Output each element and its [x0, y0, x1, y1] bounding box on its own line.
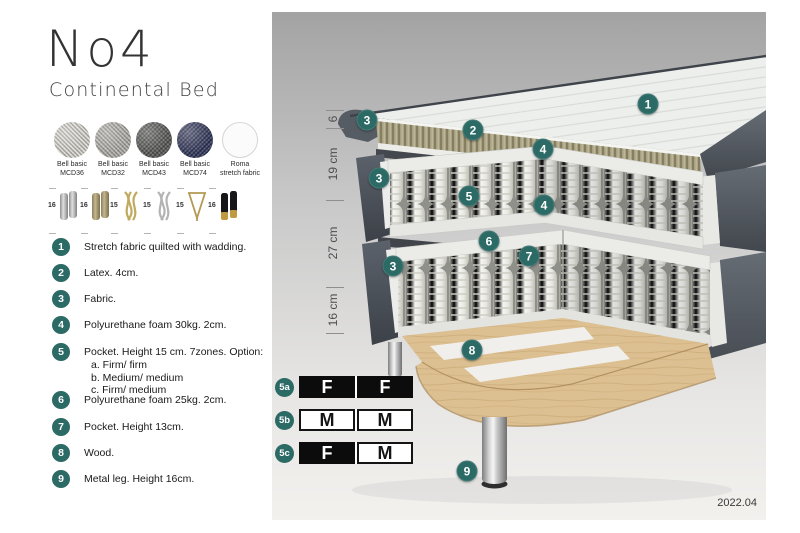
part-option-a: a. Firm/ firm: [84, 359, 263, 372]
part-description: Metal leg. Height 16cm.: [84, 470, 194, 488]
firmness-cell: F: [299, 376, 355, 398]
firmness-bar-5b: M M: [299, 409, 413, 431]
rear-leg: [388, 342, 402, 378]
leg-height-label: 15: [143, 202, 151, 209]
height-tick: [49, 233, 56, 234]
leg-height-label: 16: [48, 202, 56, 209]
firmness-cell: M: [299, 409, 355, 431]
part-number-badge: 2: [52, 264, 70, 282]
height-tick: [111, 188, 118, 189]
leg-option-wave-gold: 15: [110, 188, 142, 236]
fabric-swatch-label: Romastretch fabric: [210, 161, 270, 178]
hairpin-gold-leg-icon: [185, 190, 209, 224]
callout-6: 6: [479, 231, 500, 252]
callout-5: 5: [459, 186, 480, 207]
part-item-2: 2 Latex. 4cm.: [52, 264, 270, 282]
callout-3-middle: 3: [369, 168, 390, 189]
part-number-badge: 5: [52, 343, 70, 361]
part-item-5: 5 Pocket. Height 15 cm. 7zones. Option: …: [52, 343, 270, 397]
part-description: Latex. 4cm.: [84, 264, 138, 282]
callout-2: 2: [463, 120, 484, 141]
height-tick: [49, 188, 56, 189]
part-number-badge: 3: [52, 290, 70, 308]
callout-3-bottom: 3: [383, 256, 404, 277]
upper-box-right-fabric: [715, 165, 766, 252]
leg-option-cylinder-black-gold: 16: [208, 188, 240, 236]
cylinder-black-gold-leg-icon: [217, 190, 241, 224]
firmness-cell: M: [357, 442, 413, 464]
ruler-tick: [326, 287, 344, 288]
leg-height-label: 16: [208, 202, 216, 209]
leg-option-hairpin-gold: 15: [176, 188, 208, 236]
part-description: Fabric.: [84, 290, 116, 308]
height-tick: [111, 233, 118, 234]
leg-height-label: 15: [176, 202, 184, 209]
height-tick: [177, 188, 184, 189]
firmness-cell: F: [299, 442, 355, 464]
diagram-panel: 6 19 cm 27 cm 16 cm 1 2 3 3 3 4 4 5 6 7 …: [272, 12, 766, 520]
leg-option-cylinder-silver: 16: [48, 188, 80, 236]
part-item-9: 9 Metal leg. Height 16cm.: [52, 470, 270, 488]
height-tick: [81, 233, 88, 234]
callout-4-upper: 4: [533, 139, 554, 160]
firmness-row-5a: 5a F F: [275, 376, 413, 398]
callout-9: 9: [457, 461, 478, 482]
product-title: No4: [46, 20, 155, 78]
product-subtitle: Continental Bed: [49, 79, 219, 101]
height-tick: [177, 233, 184, 234]
version-date: 2022.04: [652, 497, 757, 509]
wave-gold-leg-icon: [119, 190, 143, 224]
height-tick: [81, 188, 88, 189]
measurement-label-19cm: 19 cm: [326, 148, 340, 181]
height-tick: [144, 233, 151, 234]
leg-option-cylinder-brass: 16: [80, 188, 112, 236]
part-description: Stretch fabric quilted with wadding.: [84, 238, 246, 256]
part-number-badge: 8: [52, 444, 70, 462]
firmness-badge-5b: 5b: [275, 411, 294, 430]
part-number-badge: 1: [52, 238, 70, 256]
ruler-tick: [326, 333, 344, 334]
part-description: Pocket. Height 13cm.: [84, 418, 184, 436]
part-item-1: 1 Stretch fabric quilted with wadding.: [52, 238, 270, 256]
height-tick: [209, 188, 216, 189]
callout-7: 7: [519, 246, 540, 267]
height-tick: [144, 188, 151, 189]
part-item-4: 4 Polyurethane foam 30kg. 2cm.: [52, 316, 270, 334]
front-leg: [482, 417, 508, 489]
firmness-bar-5c: F M: [299, 442, 413, 464]
part-description: Wood.: [84, 444, 114, 462]
leg-option-wave-silver: 15: [143, 188, 175, 236]
ruler-tick: [326, 200, 344, 201]
measurement-label-27cm: 27 cm: [326, 227, 340, 260]
measurement-label-16cm: 16 cm: [326, 294, 340, 327]
callout-1: 1: [638, 94, 659, 115]
part-item-7: 7 Pocket. Height 13cm.: [52, 418, 270, 436]
part-option-b: b. Medium/ medium: [84, 372, 263, 385]
fabric-swatch-roma: Romastretch fabric: [210, 122, 270, 178]
ruler-tick: [326, 110, 344, 111]
part-description: Polyurethane foam 25kg. 2cm.: [84, 391, 226, 409]
fabric-swatch-circle: [177, 122, 213, 158]
leg-height-label: 15: [110, 202, 118, 209]
callout-4-lower: 4: [534, 195, 555, 216]
part-description: Polyurethane foam 30kg. 2cm.: [84, 316, 226, 334]
part-number-badge: 7: [52, 418, 70, 436]
part-number-badge: 6: [52, 391, 70, 409]
part-item-8: 8 Wood.: [52, 444, 270, 462]
ruler-tick: [326, 128, 344, 129]
part-description-main: Pocket. Height 15 cm. 7zones. Option:: [84, 346, 263, 358]
callout-8: 8: [462, 340, 483, 361]
leg-height-label: 16: [80, 202, 88, 209]
part-number-badge: 9: [52, 470, 70, 488]
part-item-3: 3 Fabric.: [52, 290, 270, 308]
firmness-row-5b: 5b M M: [275, 409, 413, 431]
firmness-cell: M: [357, 409, 413, 431]
part-number-badge: 4: [52, 316, 70, 334]
fabric-swatch-circle: [222, 122, 258, 158]
part-item-6: 6 Polyurethane foam 25kg. 2cm.: [52, 391, 270, 409]
height-tick: [209, 233, 216, 234]
part-description: Pocket. Height 15 cm. 7zones. Option: a.…: [84, 343, 263, 397]
firmness-bar-5a: F F: [299, 376, 413, 398]
firmness-badge-5a: 5a: [275, 378, 294, 397]
firmness-row-5c: 5c F M: [275, 442, 413, 464]
wave-silver-leg-icon: [152, 190, 176, 224]
cylinder-silver-leg-icon: [57, 190, 81, 224]
callout-3-top: 3: [357, 110, 378, 131]
measurement-label-top: 6: [326, 116, 340, 123]
firmness-badge-5c: 5c: [275, 444, 294, 463]
firmness-cell: F: [357, 376, 413, 398]
